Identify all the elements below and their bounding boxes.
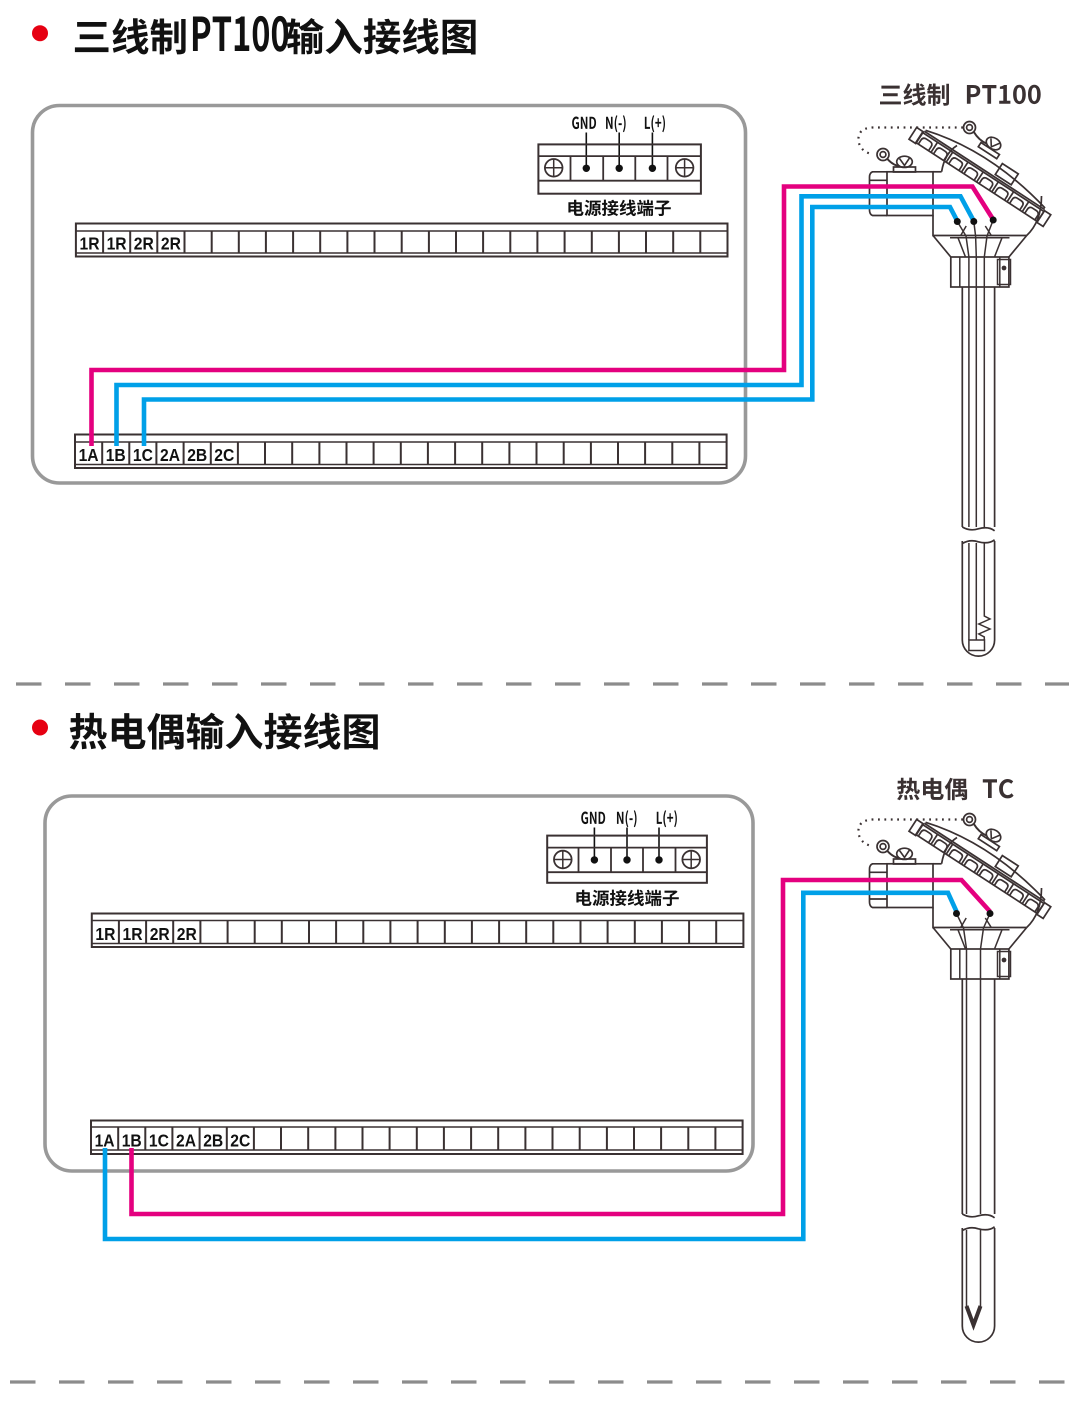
svg-text:1A: 1A <box>79 445 99 465</box>
svg-text:1C: 1C <box>149 1131 169 1151</box>
svg-text:2A: 2A <box>176 1131 196 1151</box>
svg-text:2C: 2C <box>214 445 234 465</box>
svg-text:1R: 1R <box>80 234 100 254</box>
svg-text:2R: 2R <box>134 234 154 254</box>
svg-text:2R: 2R <box>150 924 170 944</box>
svg-text:1A: 1A <box>95 1131 115 1151</box>
svg-text:2B: 2B <box>187 445 207 465</box>
svg-text:2C: 2C <box>230 1131 250 1151</box>
svg-text:2R: 2R <box>177 924 197 944</box>
svg-text:1R: 1R <box>107 234 127 254</box>
svg-text:1B: 1B <box>122 1131 142 1151</box>
svg-text:2A: 2A <box>160 445 180 465</box>
svg-text:2R: 2R <box>161 234 181 254</box>
svg-text:1C: 1C <box>133 445 153 465</box>
svg-text:1R: 1R <box>95 924 115 944</box>
svg-text:1B: 1B <box>106 445 126 465</box>
svg-text:1R: 1R <box>123 924 143 944</box>
svg-text:2B: 2B <box>203 1131 223 1151</box>
